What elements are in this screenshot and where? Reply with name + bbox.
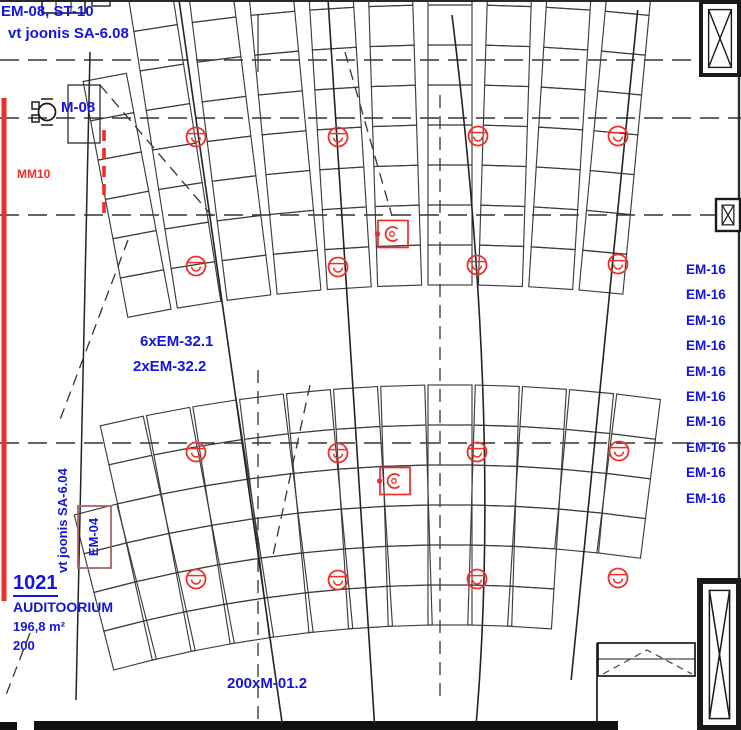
em16-label: EM-16: [686, 492, 726, 506]
device-label-em04: EM-04: [87, 518, 101, 556]
detector-symbol: [609, 255, 628, 274]
room-area: 196,8 m²: [13, 620, 65, 634]
beam-bottom-right: [597, 643, 695, 727]
em16-label: EM-16: [686, 415, 726, 429]
em16-label: EM-16: [686, 288, 726, 302]
detector-symbol: [187, 443, 206, 462]
em16-label: EM-16: [686, 441, 726, 455]
bottom-wall: [0, 721, 618, 730]
reference-note-em08: EM-08, ST-10: [1, 4, 94, 20]
room-name: AUDITOORIUM: [13, 600, 113, 615]
fixture-symbols: [375, 221, 410, 495]
em16-label: EM-16: [686, 365, 726, 379]
em16-label: EM-16: [686, 339, 726, 353]
detector-symbol: [609, 569, 628, 588]
column-small-right: [716, 199, 740, 231]
projector-fixture-symbol: [375, 221, 408, 248]
room-capacity: 200: [13, 639, 35, 653]
structure: [0, 0, 741, 730]
detector-symbol: [469, 127, 488, 146]
luminaire-count-label-m012: 200xM-01.2: [227, 676, 307, 692]
detector-symbol: [187, 570, 206, 589]
column-bottom-right: [700, 581, 739, 728]
em16-label: EM-16: [686, 466, 726, 480]
grid-lines: [0, 14, 741, 726]
em16-label: EM-16: [686, 263, 726, 277]
detector-symbol: [329, 571, 348, 590]
m08-device-symbol: [32, 99, 56, 125]
detector-symbol: [610, 442, 629, 461]
wall-label-mm10: MM10: [17, 168, 50, 181]
em16-label: EM-16: [686, 314, 726, 328]
reference-note-sa604: vt joonis SA-6.04: [56, 468, 70, 573]
auditorium-plan-drawing: [0, 0, 741, 730]
device-label-m08: M-08: [61, 100, 95, 116]
fixture-count-label-em322: 2xEM-32.2: [133, 359, 206, 375]
floor-plan-canvas: EM-08, ST-10 vt joonis SA-6.08 M-08 MM10…: [0, 0, 741, 730]
fixture-count-label-em321: 6xEM-32.1: [140, 334, 213, 350]
em16-label: EM-16: [686, 390, 726, 404]
room-number: 1021: [13, 573, 58, 597]
projector-fixture-symbol: [377, 468, 410, 495]
reference-note-sa608: vt joonis SA-6.08: [8, 26, 129, 42]
column-top-right: [701, 2, 739, 75]
